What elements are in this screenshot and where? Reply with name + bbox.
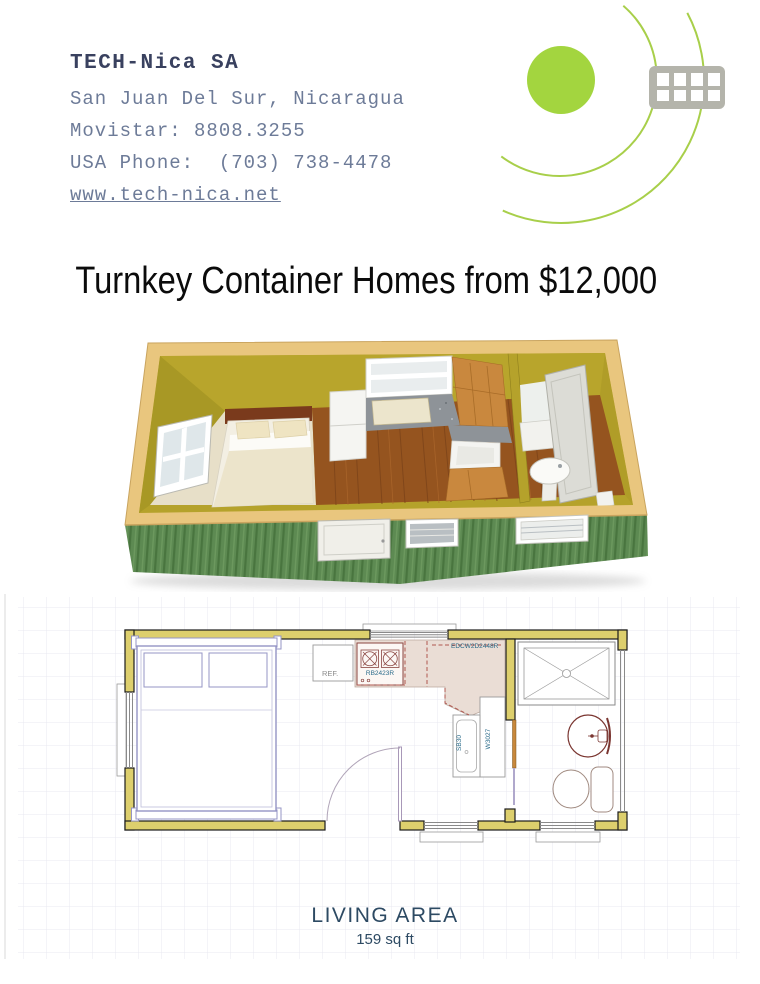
bed-plan	[132, 636, 282, 821]
stove-3d	[372, 398, 431, 425]
front-window-2	[516, 515, 588, 544]
bath-door-leaf	[513, 720, 517, 768]
living-area-value: 159 sq ft	[356, 931, 414, 948]
label-range: RB2423R	[366, 670, 394, 677]
label-corner-cabinet: EDCW2D2448R	[451, 643, 499, 650]
label-wall-cabinet: W3027	[485, 728, 492, 749]
headline-row: Turnkey Container Homes from $12,000	[0, 260, 760, 303]
front-window-1	[406, 519, 458, 548]
toilet-3d	[596, 491, 614, 507]
floor-plan: REF. RB2423R EDCW2D2448R SB30 W3027 LIVI…	[0, 584, 760, 984]
company-logo	[470, 0, 760, 250]
logo-arcs	[501, 6, 704, 223]
wall-cabinet-plan	[480, 697, 505, 777]
bed-3d	[212, 406, 313, 507]
label-sink-base: SB30	[456, 735, 463, 751]
base-cabinets-3d	[446, 467, 508, 501]
bedroom-window-3d	[154, 415, 212, 497]
container-interior	[139, 352, 633, 513]
company-name: TECH-Nica SA	[70, 52, 405, 75]
logo-circle	[527, 46, 595, 114]
website-link[interactable]: www.tech-nica.net	[70, 184, 281, 206]
company-location: San Juan Del Sur, Nicaragua	[70, 88, 405, 110]
container-3d-render	[0, 325, 760, 595]
living-area-title: LIVING AREA	[311, 904, 458, 927]
company-phone-usa: USA Phone: (703) 738-4478	[70, 152, 405, 174]
company-header: TECH-Nica SA San Juan Del Sur, Nicaragua…	[70, 52, 405, 216]
page-title: Turnkey Container Homes from $12,000	[75, 260, 657, 303]
upper-cabinets-3d	[452, 357, 508, 427]
shower-plan	[518, 642, 615, 705]
stove-plan	[357, 643, 403, 685]
flyer-page: TECH-Nica SA San Juan Del Sur, Nicaragua…	[0, 0, 760, 984]
company-phone-movistar: Movistar: 8808.3255	[70, 120, 405, 142]
label-ref: REF.	[322, 669, 338, 678]
front-door	[318, 519, 390, 561]
container-grid-icon	[649, 66, 725, 109]
